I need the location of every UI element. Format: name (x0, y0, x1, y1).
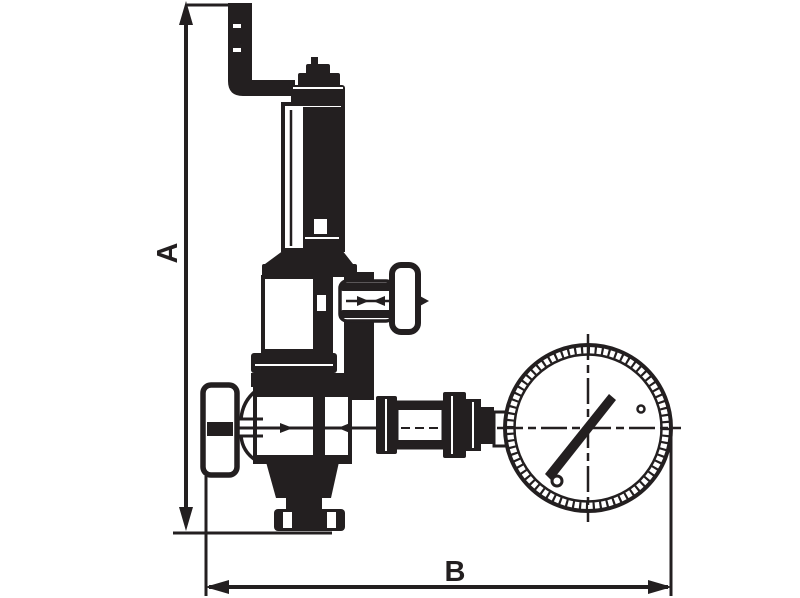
drawing-canvas: A B (0, 0, 800, 598)
dimension-a-label: A (152, 242, 184, 263)
dimension-a-arrow-down (179, 507, 193, 531)
bottom-cone (266, 462, 339, 510)
adjustment-cap (291, 57, 345, 105)
housing-skirt (262, 250, 357, 277)
dimension-b-arrow-left (205, 580, 229, 594)
inlet-handwheel (203, 385, 237, 475)
valve-dimension-drawing: A B (0, 0, 800, 598)
drain-stem-tip (418, 295, 429, 307)
dimension-b-arrow-right (648, 580, 672, 594)
drain-handle (392, 265, 429, 332)
bell-housing (263, 277, 331, 351)
discharge-pipe (228, 3, 295, 96)
bottom-flange (274, 509, 345, 531)
outlet-couplings (376, 392, 510, 458)
pressure-gauge (497, 334, 681, 522)
gauge-dial-dot (638, 406, 645, 413)
spring-housing (283, 104, 343, 250)
dimension-b-label: B (445, 556, 466, 588)
gauge-needle-hub (552, 476, 562, 486)
